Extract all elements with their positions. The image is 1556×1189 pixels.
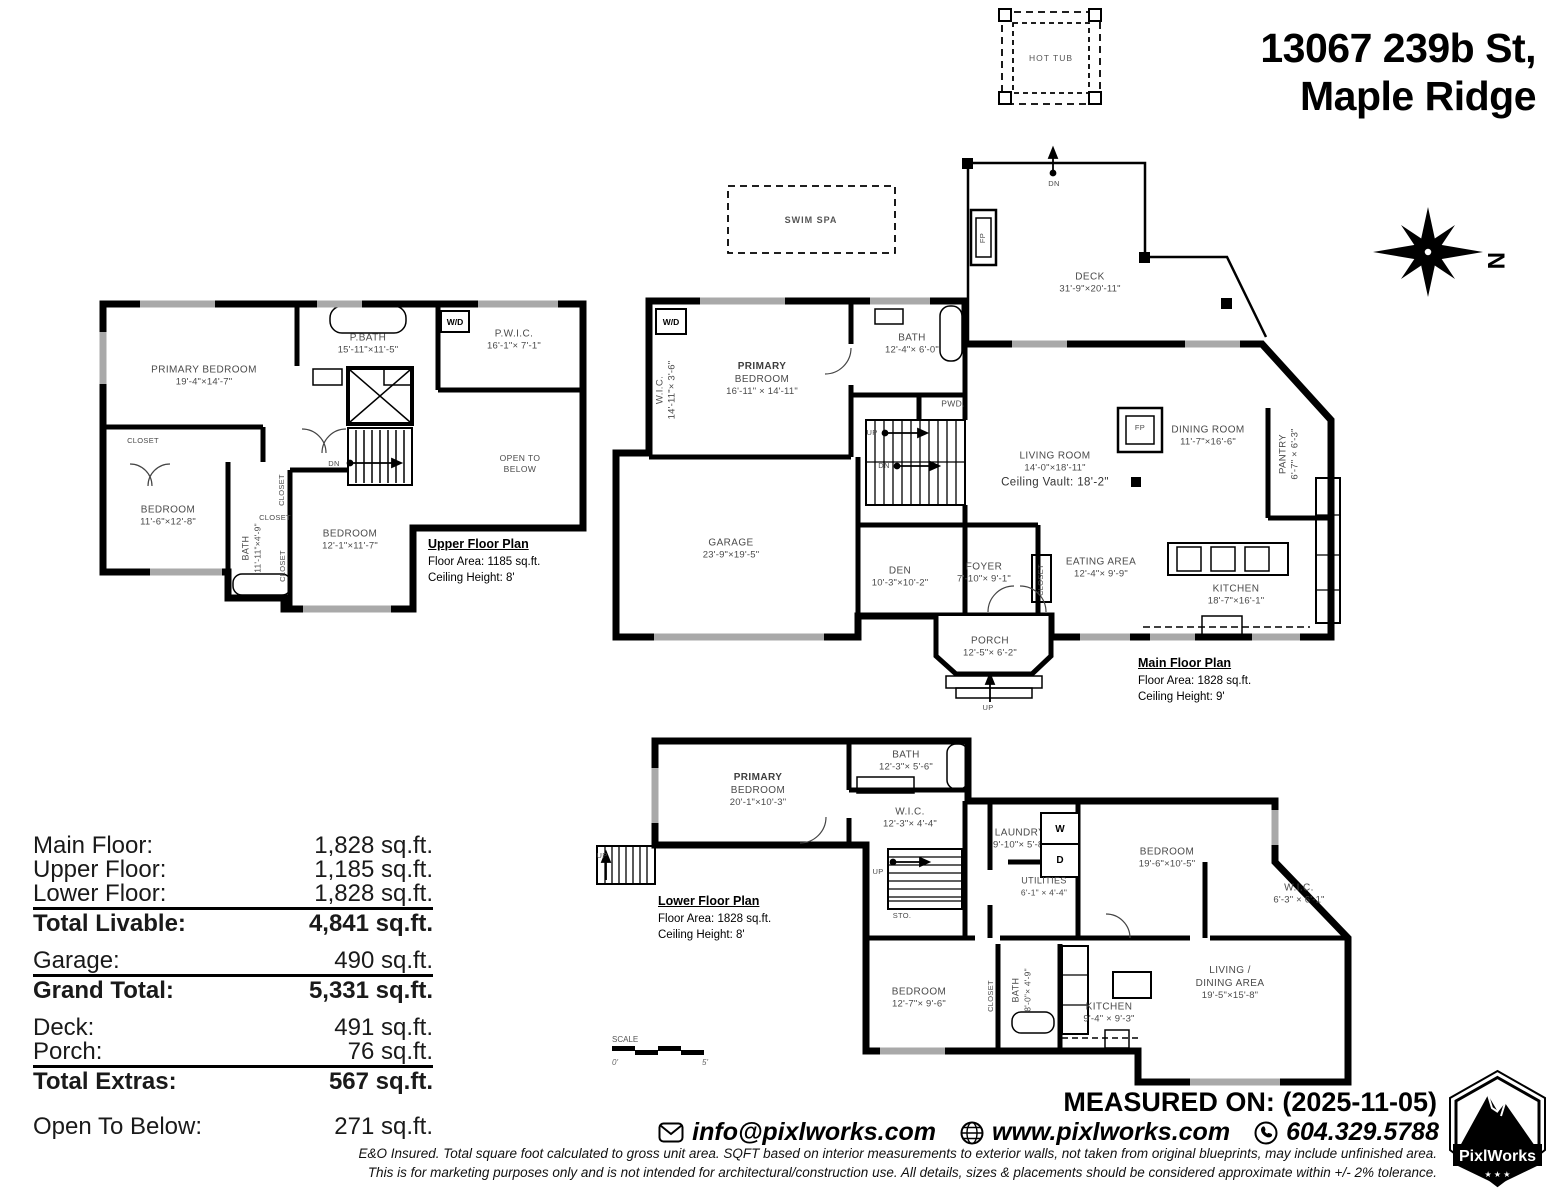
upper-washer-dryer: W/D [440, 310, 470, 333]
grand-total-row: Grand Total:5,331 sq.ft. [33, 974, 433, 1003]
scale-end: 5' [702, 1058, 708, 1067]
lower-closet-label: CLOSET [986, 980, 996, 1012]
brand-name: PixlWorks [1459, 1148, 1536, 1165]
laundry-label: LAUNDRY9'-10"× 5'-8" [993, 826, 1047, 851]
upper-bedroom2-label: BEDROOM12'-1"×11'-7" [322, 527, 378, 552]
pixlworks-logo: PixlWorks ★ ★ ★ [1441, 1068, 1554, 1189]
upper-closet-left-label: CLOSET [127, 436, 159, 446]
lower-bath2-label: BATH8'-0"× 4'-9" [1011, 968, 1034, 1012]
storage-label: STO. [893, 911, 912, 921]
living-fireplace-label: FP [1135, 423, 1145, 433]
lower-bath1-label: BATH12'-3"× 5'-6" [879, 748, 933, 773]
lower-bedroom1-label: BEDROOM19'-6"×10'-5" [1139, 845, 1196, 870]
open-to-below-group: Open To Below:271 sq.ft. [33, 1115, 433, 1139]
extras-group: Deck:491 sq.ft. Porch:76 sq.ft. Total Ex… [33, 1016, 433, 1094]
disclaimer-line1: E&O Insured. Total square foot calculate… [97, 1146, 1437, 1161]
scale-label: SCALE [612, 1035, 708, 1044]
email-text: info@pixlworks.com [692, 1118, 936, 1147]
lower-wic2-label: W.I.C.6'-3" × 6'-1" [1273, 881, 1324, 906]
washer-box: W [1040, 812, 1080, 847]
floorplan-sheet: N 13067 239b St, Maple Ridge HOT TUB SWI… [0, 0, 1556, 1189]
foyer-label: FOYER7'-10"× 9'-1" [957, 560, 1011, 585]
upper-closet-c-label: CLOSET [278, 550, 288, 582]
porch-up-label: UP [982, 703, 993, 713]
grand-total-group: Garage:490 sq.ft. Grand Total:5,331 sq.f… [33, 949, 433, 1003]
garage-label: GARAGE23'-9"×19'-5" [703, 536, 760, 561]
eating-area-label: EATING AREA12'-4"× 9'-9" [1066, 555, 1136, 580]
main-floor-plan-caption: Main Floor Plan Floor Area: 1828 sq.ft. … [1138, 655, 1251, 705]
utilities-label: UTILITIES6'-1" × 4'-4" [1021, 876, 1067, 899]
north-compass: N [1373, 207, 1509, 297]
porch-label: PORCH12'-5"× 6'-2" [963, 634, 1017, 659]
brand-stars: ★ ★ ★ [1485, 1170, 1511, 1179]
dryer-box: D [1040, 843, 1080, 878]
measured-on: MEASURED ON: (2025-11-05) [1063, 1087, 1437, 1118]
upper-bath-label: BATH11'-11"×4'-9" [241, 523, 264, 573]
phone-text: 604.329.5788 [1286, 1118, 1439, 1147]
hot-tub-label: HOT TUB [1029, 53, 1073, 63]
contact-row: info@pixlworks.com www.pixlworks.com 604… [658, 1118, 1439, 1147]
globe-icon [960, 1121, 984, 1145]
upper-pbath-label: P.BATH15'-11"×11'-5" [338, 331, 399, 356]
main-up-label: UP [866, 428, 877, 438]
lower-bedroom2-label: BEDROOM12'-7"× 9'-6" [892, 985, 946, 1010]
website-text: www.pixlworks.com [992, 1118, 1230, 1147]
livable-areas-group: Main Floor:1,828 sq.ft. Upper Floor:1,18… [33, 834, 433, 936]
open-to-below-label: OPEN TOBELOW [500, 453, 541, 475]
lower-primary-bedroom-label: PRIMARY BEDROOM 20'-1"×10'-3" [730, 771, 787, 809]
deck-label: DECK31'-9"×20'-11" [1059, 270, 1120, 295]
lower-up1-label: UP [596, 851, 607, 861]
total-extras-row: Total Extras:567 sq.ft. [33, 1065, 433, 1094]
upper-pwic-label: P.W.I.C.16'-1"× 7'-1" [487, 327, 541, 352]
lower-wic1-label: W.I.C.12'-3"× 4'-4" [883, 805, 937, 830]
main-bath-label: BATH12'-4"× 6'-0" [885, 331, 939, 356]
north-label: N [1482, 252, 1509, 269]
scale-start: 0' [612, 1058, 618, 1067]
scale-bar: SCALE 0' 5' [612, 1035, 708, 1067]
main-dn-label: DN [878, 461, 889, 471]
upper-dn-label: DN [328, 459, 339, 469]
email-icon [658, 1122, 684, 1143]
upper-bedroom1-label: BEDROOM11'-6"×12'-8" [140, 503, 196, 528]
lower-living-dining-label: LIVING / DINING AREA 19'-5"×15'-8" [1196, 964, 1265, 1002]
deck-fireplace-label: FP [978, 233, 988, 243]
lower-kitchen-label: KITCHEN9'-4" × 9'-3" [1083, 1000, 1134, 1025]
main-pantry-label: PANTRY6'-7" × 6'-3" [1278, 428, 1303, 479]
main-wic-label: W.I.C.14'-11"× 3'-6" [655, 361, 680, 420]
phone-icon [1254, 1121, 1278, 1145]
total-livable-row: Total Livable:4,841 sq.ft. [33, 907, 433, 936]
main-kitchen-label: KITCHEN18'-7"×16'-1" [1208, 582, 1265, 607]
scale-segments [612, 1046, 708, 1056]
upper-floor-plan-caption: Upper Floor Plan Floor Area: 1185 sq.ft.… [428, 536, 540, 586]
main-washer-dryer: W/D [655, 308, 687, 335]
area-summary: Main Floor:1,828 sq.ft. Upper Floor:1,18… [33, 834, 433, 1139]
main-pwd-label: PWD. [941, 398, 964, 409]
main-dining-room-label: DINING ROOM11'-7"×16'-6" [1171, 423, 1244, 448]
lower-floor-plan-caption: Lower Floor Plan Floor Area: 1828 sq.ft.… [658, 893, 771, 943]
page-title: 13067 239b St, Maple Ridge [1260, 24, 1536, 121]
swim-spa-label: SWIM SPA [785, 215, 838, 225]
upper-closet-a-label: CLOSET [259, 513, 291, 523]
upper-primary-bedroom-label: PRIMARY BEDROOM19'-4"×14'-7" [151, 363, 257, 388]
upper-closet-b-label: CLOSET [277, 474, 287, 506]
den-label: DEN10'-3"×10'-2" [872, 564, 929, 589]
deck-dn-label: DN [1048, 179, 1059, 189]
main-closet-label: CLOSET [1036, 564, 1046, 596]
main-primary-bedroom-label: PRIMARY BEDROOM 16'-11" × 14'-11" [726, 360, 798, 398]
disclaimer-line2: This is for marketing purposes only and … [97, 1165, 1437, 1180]
main-living-room-label: LIVING ROOM 14'-0"×18'-11" Ceiling Vault… [1001, 449, 1109, 490]
lower-up2-label: UP [871, 867, 884, 877]
